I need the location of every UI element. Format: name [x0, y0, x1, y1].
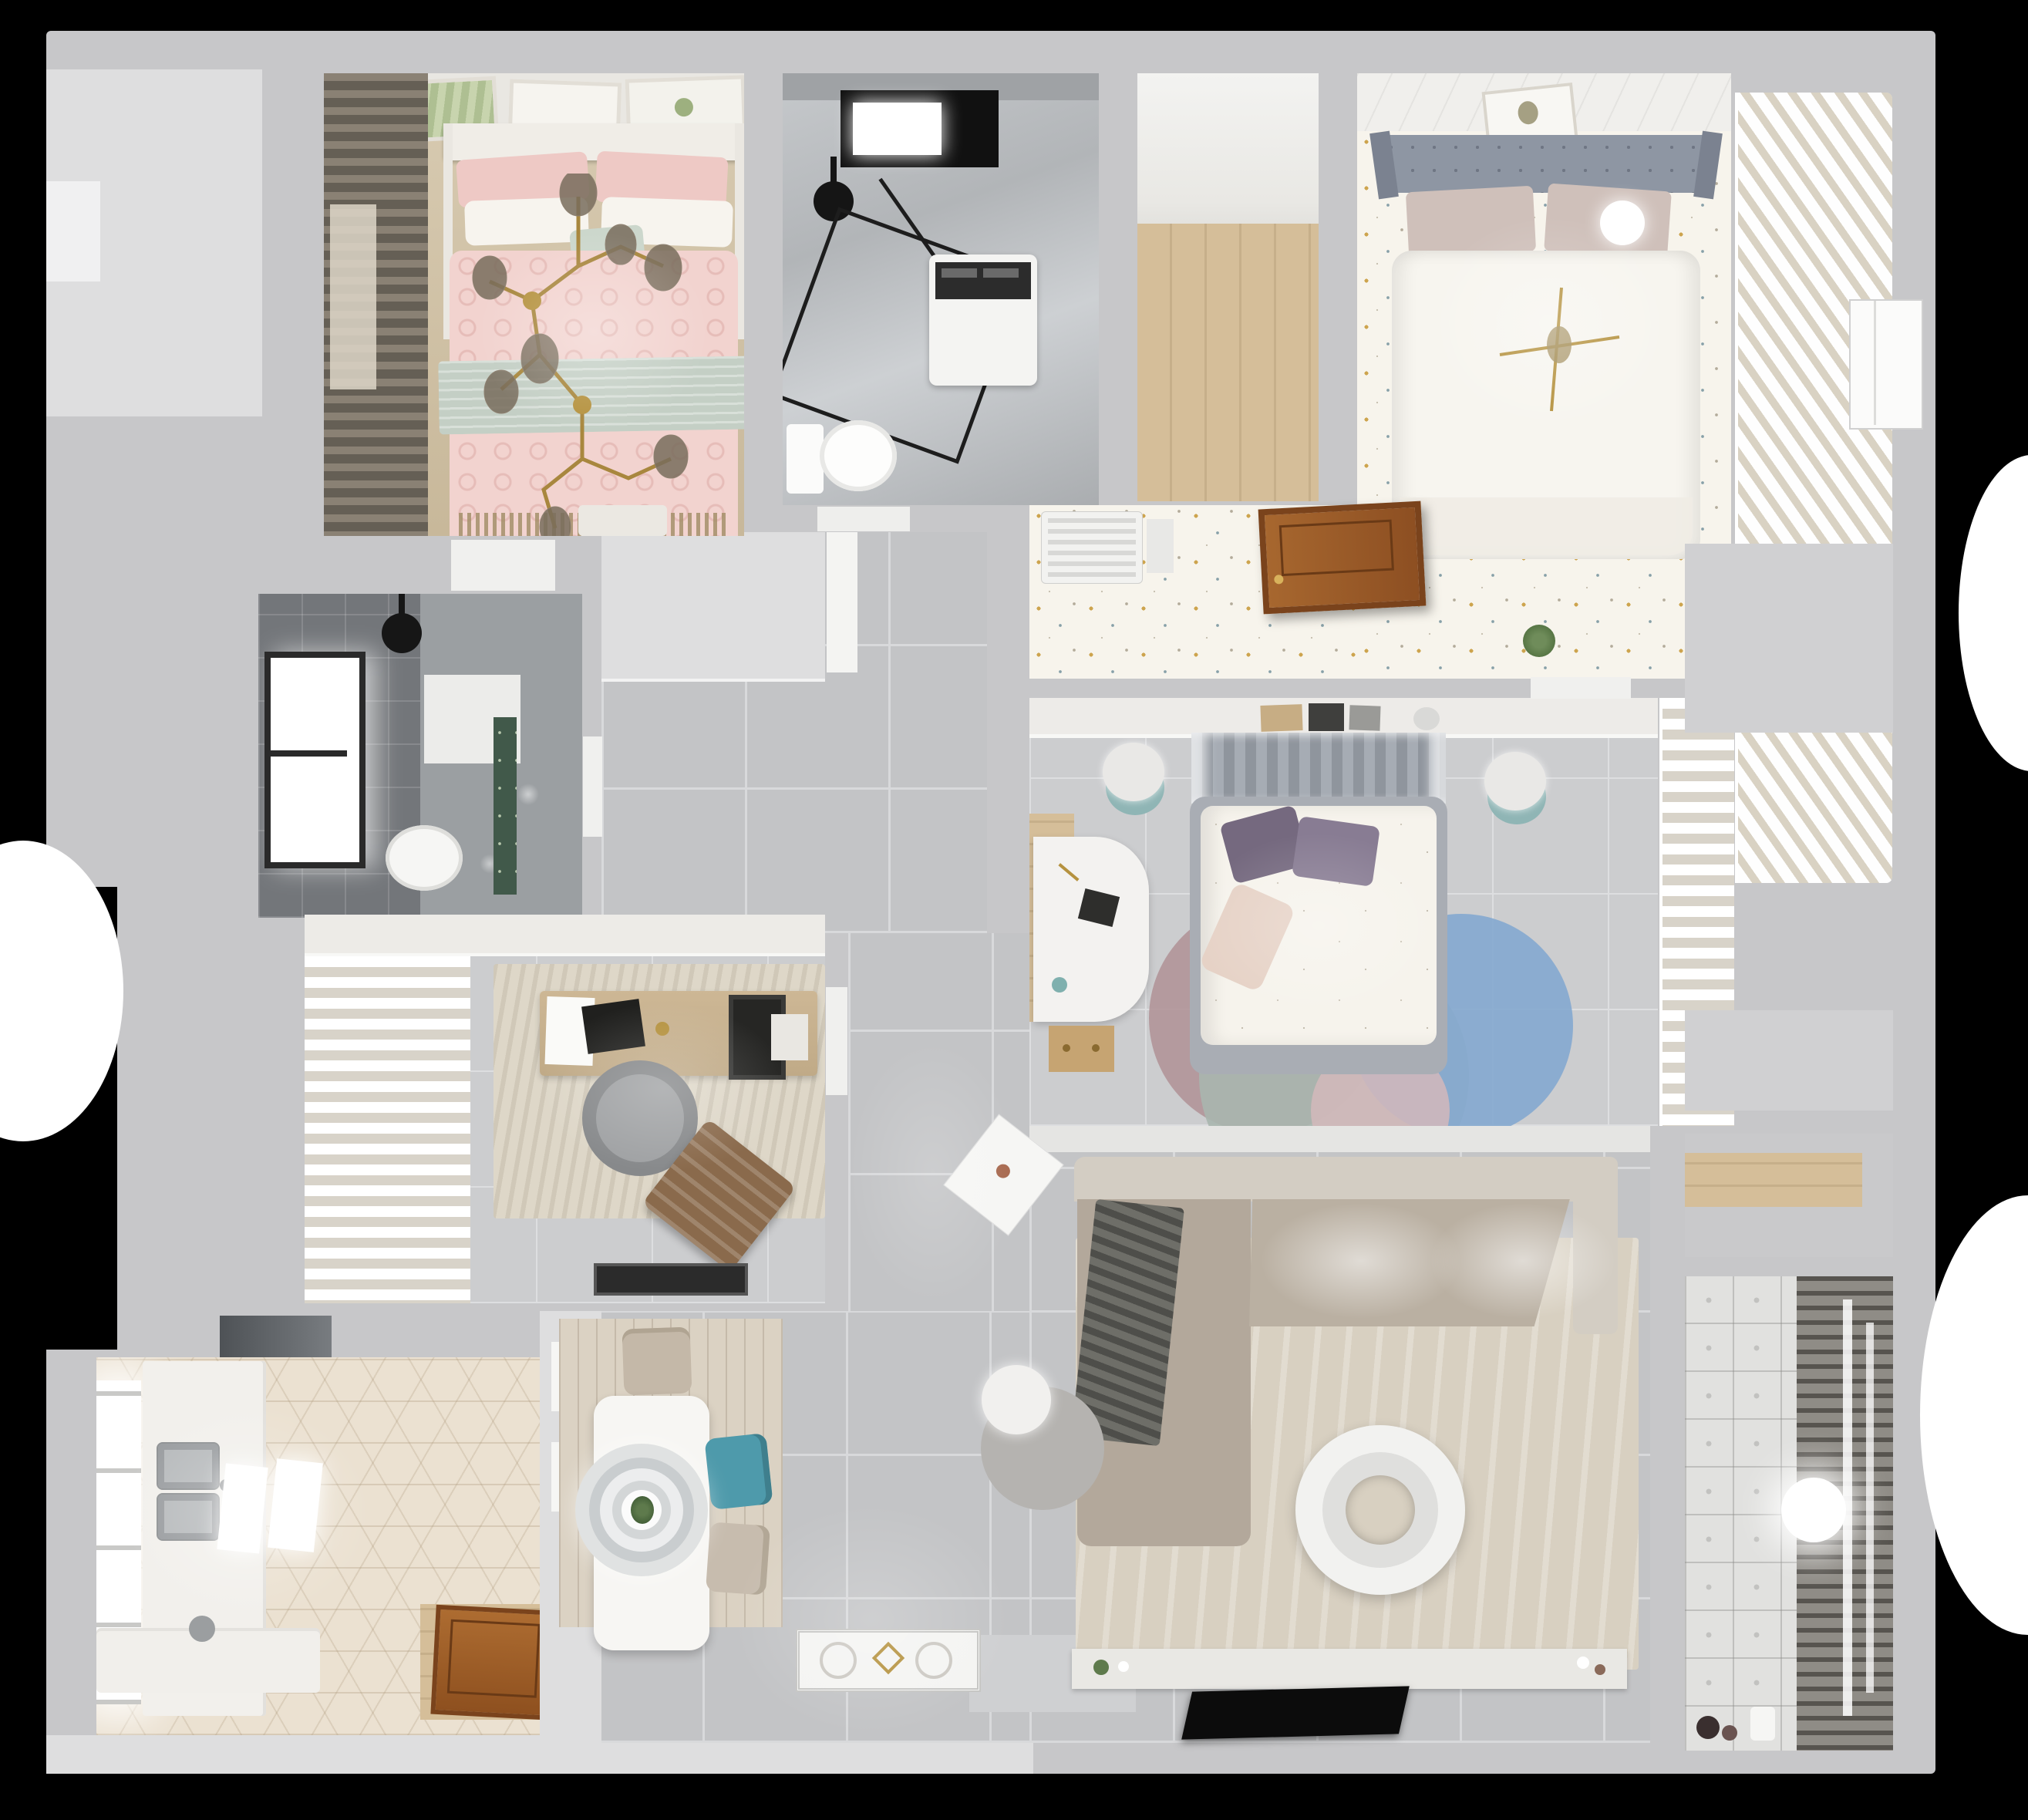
tufted-headboard	[1380, 135, 1712, 193]
storage-wood-floor	[1137, 224, 1319, 501]
sofa-arm-right	[1573, 1157, 1618, 1334]
hall-right-recess-1	[1685, 544, 1893, 733]
duvet-foot-fold	[1400, 497, 1693, 555]
tv-black	[1181, 1686, 1410, 1739]
door-gap-study	[826, 987, 847, 1095]
wood-drawer-unit	[1049, 1026, 1114, 1072]
chair-seat	[596, 1074, 684, 1162]
washing-machine	[929, 254, 1037, 386]
canopy-curtain	[1191, 733, 1446, 804]
console-vase	[1118, 1661, 1129, 1672]
gold-branch-chandelier	[416, 174, 740, 536]
washer-slit-1	[942, 268, 977, 278]
ac-vent-grille	[1041, 511, 1143, 584]
light-panel-1	[217, 1463, 268, 1553]
toilet-bowl	[820, 420, 897, 491]
shelf-book-1	[1260, 704, 1302, 732]
washer-drum	[935, 262, 1031, 299]
desk-cup-teal	[1052, 977, 1067, 993]
desk-tray	[771, 1014, 808, 1060]
light-spill-right-small	[1959, 455, 2028, 771]
toy-dark-1	[1696, 1716, 1720, 1739]
light-spill-right-large	[1920, 1195, 2028, 1635]
headboard	[443, 123, 744, 160]
ball-pendant-light	[1781, 1478, 1846, 1542]
door-gap-bathroom-top	[817, 507, 910, 531]
green-accent	[494, 717, 517, 895]
botanical-sprig	[675, 98, 694, 117]
stool-left-top	[1103, 743, 1164, 801]
master-desk	[1033, 837, 1149, 1022]
stool-right-top	[1484, 752, 1546, 811]
drawer-knob-2	[1092, 1044, 1100, 1052]
shelf-book-3	[1349, 705, 1380, 730]
table-plant	[631, 1496, 654, 1524]
pillow-purple-2	[1292, 816, 1380, 887]
mat-scroll-right	[915, 1642, 952, 1679]
toilet-left-bath	[386, 825, 463, 891]
range-hood	[220, 1316, 332, 1359]
corridor-wall-block	[601, 532, 825, 679]
outer-wall-bright-patch	[46, 181, 100, 281]
sink-basin-top	[157, 1442, 220, 1490]
vent-side-box	[1147, 519, 1174, 573]
desk-mug	[655, 1022, 669, 1036]
potted-plant	[1523, 625, 1555, 657]
bed-white	[1380, 135, 1712, 567]
study-desk	[540, 991, 817, 1076]
skylight	[841, 90, 999, 167]
shelf-bowl	[1413, 707, 1440, 730]
wardrobe-slatted	[1735, 93, 1892, 883]
dining-chair-bottom	[706, 1522, 770, 1595]
door-gap-pink-bedroom	[451, 540, 555, 591]
wallpaper-hall	[1029, 505, 1357, 679]
kitchen	[96, 1357, 559, 1735]
entry-mat	[796, 1629, 981, 1692]
ring-pendant-light	[575, 1444, 708, 1576]
kitchen-door-panel	[447, 1619, 541, 1698]
bathroom-top	[783, 73, 1099, 505]
bedroom-small	[324, 73, 744, 536]
sofa-back	[1074, 1157, 1618, 1202]
bathroom-left	[258, 594, 582, 918]
niche-wood-shelf	[1685, 1153, 1862, 1207]
study-door-mat	[594, 1263, 748, 1296]
balcony-niche	[1685, 1134, 1893, 1257]
window-crossbar	[271, 750, 347, 757]
shower-arm	[830, 157, 837, 189]
ball-lamp	[1600, 201, 1645, 245]
rack-window-sliver-2	[1866, 1323, 1874, 1693]
hall-right-recess-2	[1685, 1010, 1893, 1111]
dining-chair-teal	[704, 1433, 773, 1510]
tv-console	[1072, 1649, 1627, 1689]
bedroom-master	[1029, 698, 1658, 1126]
door-leaf-line	[1874, 301, 1876, 425]
counter-faucet	[189, 1616, 215, 1642]
study-sheer-curtains	[305, 956, 470, 1303]
art-plant-motif	[1517, 100, 1539, 126]
balcony	[1685, 1276, 1893, 1751]
open-wood-door	[1258, 501, 1427, 615]
toy-dark-2	[1722, 1725, 1737, 1741]
sofa-seat	[1249, 1199, 1573, 1326]
console-item-right-1	[1577, 1657, 1589, 1669]
shower-stem	[399, 594, 405, 617]
bedroom-small-window	[330, 204, 376, 389]
side-table-decor	[993, 1161, 1012, 1181]
floor-plan-canvas	[0, 0, 2028, 1820]
mat-scroll-left	[820, 1642, 857, 1679]
lit-wall-band	[1029, 1126, 1650, 1152]
study	[305, 956, 825, 1303]
sink-basin-bottom	[157, 1493, 220, 1541]
storage-walkin	[1137, 73, 1319, 501]
vent-slats	[1048, 518, 1136, 577]
mat-gold-mark	[872, 1642, 905, 1674]
coffee-table-hole	[1346, 1475, 1415, 1545]
washer-slit-2	[983, 268, 1019, 278]
watering-can	[1750, 1707, 1775, 1741]
door-gap-bathroom-left	[583, 736, 602, 837]
door-gap-master	[1531, 677, 1631, 699]
bathroom-window	[264, 652, 366, 868]
dining-chair-top	[622, 1326, 692, 1395]
skylight-pane	[853, 103, 942, 155]
desk-laptop-master	[1078, 888, 1120, 927]
door-panel-line	[1279, 520, 1394, 577]
gold-branch-decor	[1488, 281, 1627, 420]
white-door-top-right	[1849, 299, 1923, 430]
console-item-right-2	[1595, 1664, 1605, 1675]
ottoman-seat	[982, 1365, 1051, 1434]
desk-pen-gold	[1058, 863, 1079, 881]
shelf-book-2	[1309, 703, 1344, 731]
door-handle	[1274, 575, 1284, 585]
pillow-blush-left	[1406, 186, 1536, 258]
drawer-knob-1	[1063, 1044, 1070, 1052]
desk-laptop	[581, 999, 645, 1054]
light-panel-2	[268, 1458, 323, 1552]
corridor-door-sliver	[827, 532, 857, 672]
toilet-tank	[787, 424, 824, 494]
shower-head-dark-bath	[382, 613, 422, 653]
study-closet-band	[305, 915, 825, 956]
living-set	[1029, 1126, 1650, 1743]
coffee-table	[1295, 1425, 1465, 1595]
console-plant	[1093, 1660, 1109, 1675]
corridor-upper	[601, 532, 987, 933]
